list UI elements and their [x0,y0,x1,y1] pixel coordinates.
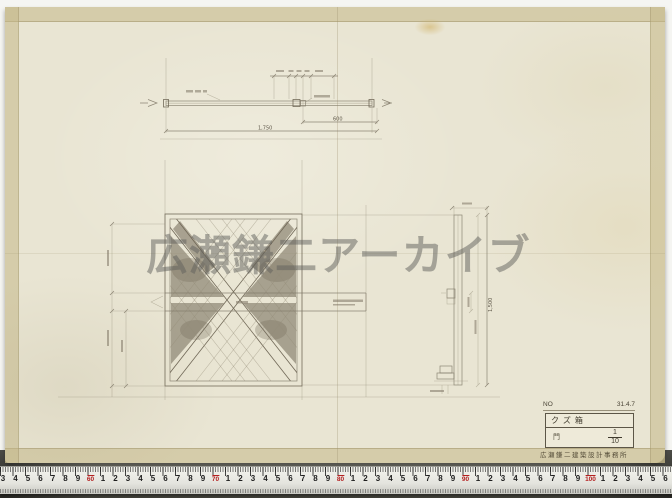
ruler-digit: 9 [326,474,330,483]
ruler-digit: 1 [601,474,605,483]
ruler-red-label: 60 [87,475,94,484]
ruler-digit: 9 [201,474,205,483]
ruler-bottom-ticks [0,489,672,493]
scale-denominator: 10 [608,438,622,446]
ruler-digit: 6 [163,474,167,483]
ruler-digit: 8 [563,474,567,483]
ruler-digit: 9 [451,474,455,483]
scale-fraction: 1 10 [608,429,622,446]
ruler-digit: 2 [238,474,242,483]
ruler-digit: 1 [476,474,480,483]
ruler-digit: 7 [551,474,555,483]
ruler-digit: 4 [388,474,392,483]
ruler-digit: 6 [38,474,42,483]
title-block-no-label: NO [543,401,553,410]
ruler-digit: 1 [226,474,230,483]
ruler-digit: 8 [63,474,67,483]
ruler-digit: 6 [413,474,417,483]
ruler-digit: 5 [401,474,405,483]
ruler-red-label: 80 [337,475,344,484]
ruler-red-label: 100 [585,475,596,484]
ruler-digit: 4 [513,474,517,483]
title-block-header: NO 31.4.7 [543,401,635,410]
ruler-digit: 4 [138,474,142,483]
ruler-digit: 5 [26,474,30,483]
ruler-digit: 3 [501,474,505,483]
drawing-item-label: 門 [553,432,560,442]
dim-side-height: 1,500 [488,298,494,312]
ruler-digit: 2 [363,474,367,483]
ruler-red-label: 70 [212,475,219,484]
scale-numerator: 1 [608,429,622,438]
ruler-digit: 9 [76,474,80,483]
ruler-digit: 5 [526,474,530,483]
ruler-digit: 5 [151,474,155,483]
ruler-digit: 9 [576,474,580,483]
archive-photo: 600 1,750 [0,0,672,498]
ruler-digit: 6 [538,474,542,483]
ruler-digit: 6 [288,474,292,483]
dim-top-rail: 600 [333,117,343,123]
ruler-digit: 3 [1,474,5,483]
photo-scale-ruler: 3456789601234567897012345678980123456789… [0,466,672,494]
title-block: クズ箱 門 1 10 [545,413,634,448]
ruler-digit: 1 [351,474,355,483]
ruler-digit: 8 [313,474,317,483]
ruler-digit: 1 [101,474,105,483]
dim-top-overall: 1,750 [258,126,272,132]
title-block-date: 31.4.7 [617,401,635,410]
ruler-digit: 7 [176,474,180,483]
top-section-drawing: 600 1,750 [140,58,392,139]
ruler-digit: 3 [626,474,630,483]
office-stamp: 広瀬鎌二建築設計事務所 [540,449,658,459]
ruler-digit: 2 [613,474,617,483]
ruler-digit: 2 [113,474,117,483]
ruler-digit: 3 [251,474,255,483]
ruler-digit: 8 [188,474,192,483]
ruler-digit: 5 [651,474,655,483]
ruler-digit: 5 [276,474,280,483]
ruler-digit: 7 [301,474,305,483]
ruler-digit: 3 [376,474,380,483]
title-block-row: 門 1 10 [546,428,633,449]
ruler-digit: 7 [426,474,430,483]
title-block-underline [543,410,635,411]
ruler-digit: 3 [126,474,130,483]
drawing-title: クズ箱 [546,414,633,428]
ruler-digit: 4 [263,474,267,483]
ruler-digit: 4 [13,474,17,483]
ruler-digit: 6 [663,474,667,483]
ruler-red-label: 90 [462,475,469,484]
ruler-digit: 4 [638,474,642,483]
archive-watermark: 広瀬鎌二アーカイブ [146,222,530,283]
ruler-digit: 7 [51,474,55,483]
ruler-digit: 8 [438,474,442,483]
ruler-digit: 2 [488,474,492,483]
